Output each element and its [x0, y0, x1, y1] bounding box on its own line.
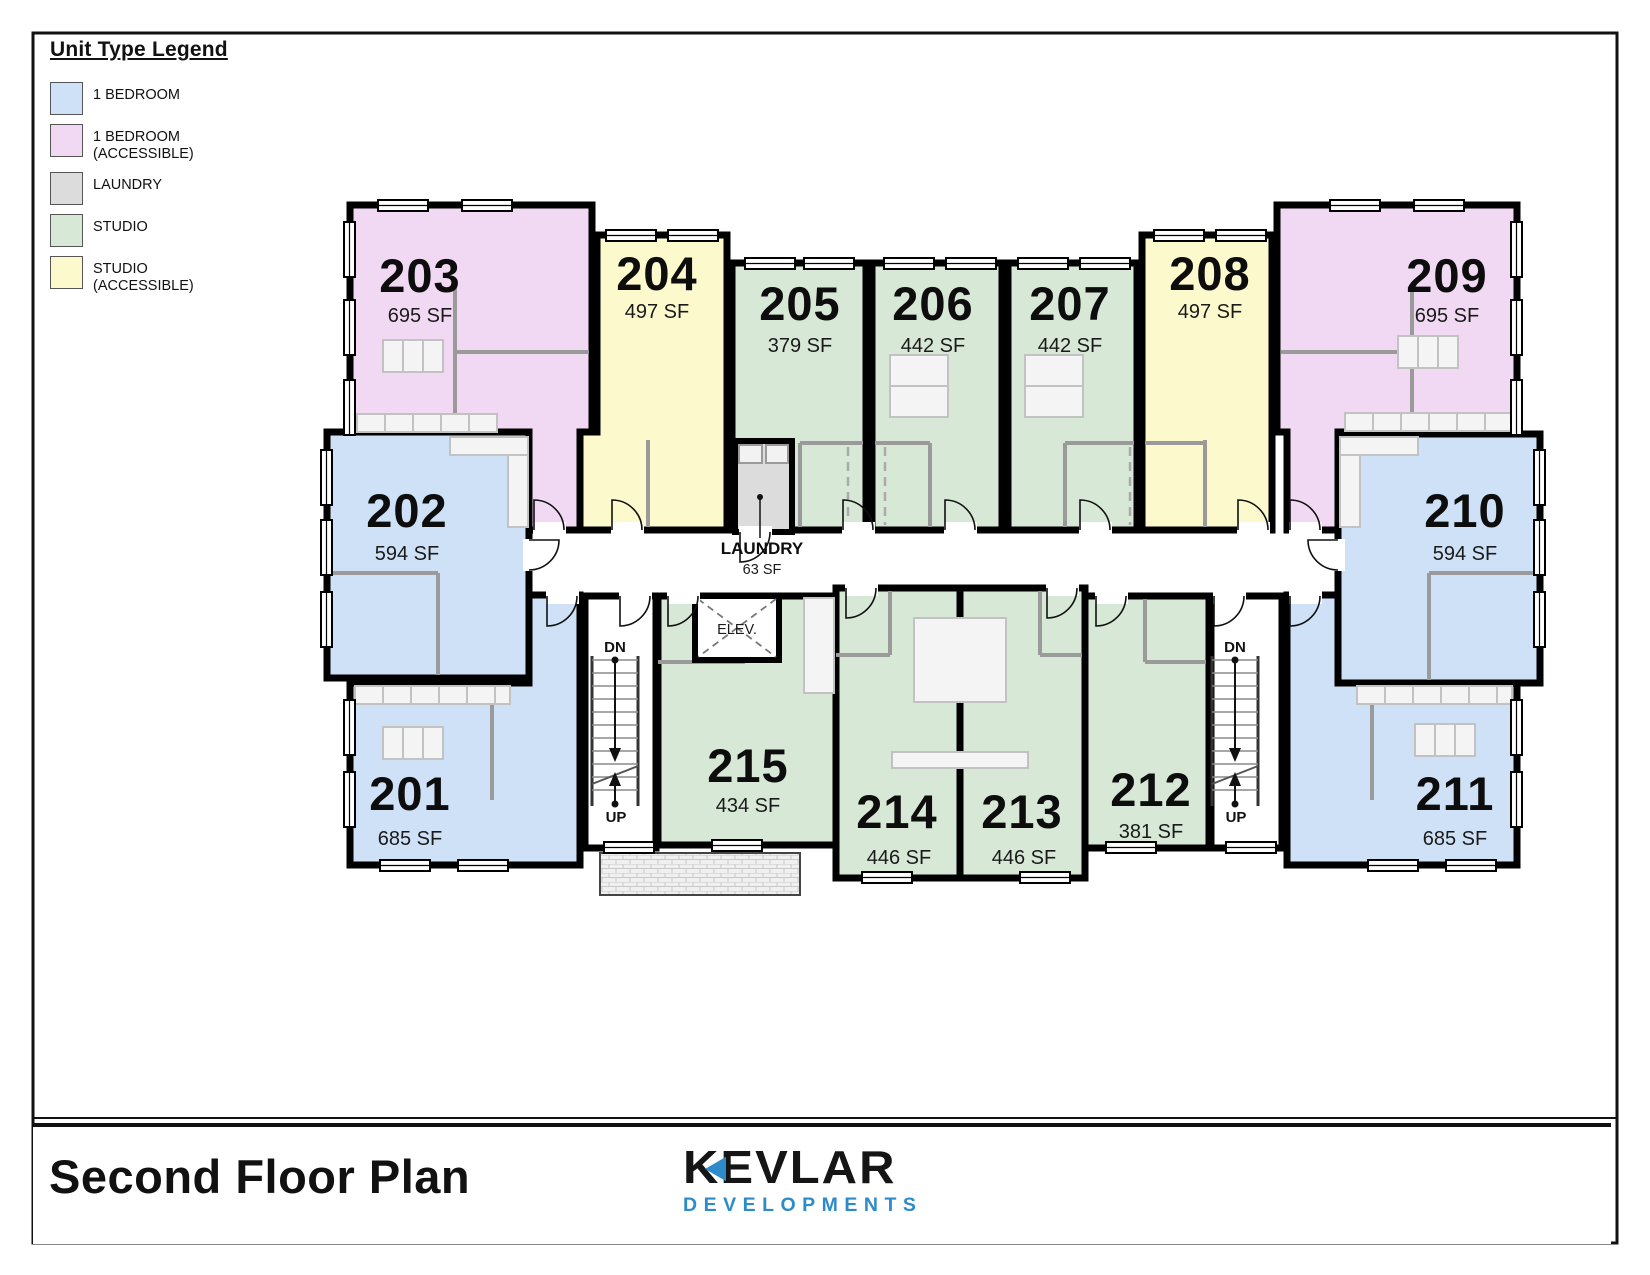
- unit-211-area: 685 SF: [1423, 828, 1487, 850]
- unit-215-number: 215: [707, 739, 788, 792]
- unit-205-area: 379 SF: [768, 335, 832, 357]
- logo-chevron-icon: [705, 1157, 726, 1181]
- unit-208-area: 497 SF: [1178, 301, 1242, 323]
- unit-212-area: 381 SF: [1119, 821, 1183, 843]
- laundry-label: LAUNDRY: [721, 539, 804, 558]
- unit-204-number: 204: [616, 247, 697, 300]
- right-stair-up-label: UP: [1226, 809, 1247, 826]
- unit-204-area: 497 SF: [625, 301, 689, 323]
- unit-210-area: 594 SF: [1433, 543, 1497, 565]
- unit-213-area: 446 SF: [992, 847, 1056, 869]
- legend-label: STUDIO (ACCESSIBLE): [93, 256, 194, 295]
- unit-207-area: 442 SF: [1038, 335, 1102, 357]
- unit-214-number: 214: [856, 785, 937, 838]
- kevlar-logo: KEVLAR DEVELOPMENTS: [683, 1143, 1003, 1217]
- unit-213-number: 213: [981, 785, 1062, 838]
- unit-210-number: 210: [1424, 484, 1505, 537]
- entry-canopy-hatch: [600, 853, 800, 895]
- unit-206-area: 442 SF: [901, 335, 965, 357]
- title-block-separator: [33, 1117, 1617, 1119]
- left-stair-up-label: UP: [606, 809, 627, 826]
- unit-209-number: 209: [1406, 249, 1487, 302]
- logo-subtitle: DEVELOPMENTS: [683, 1194, 1003, 1217]
- unit-206-number: 206: [892, 277, 973, 330]
- legend-label: 1 BEDROOM: [93, 82, 180, 104]
- legend-title: Unit Type Legend: [50, 38, 320, 62]
- unit-215-area: 434 SF: [716, 795, 780, 817]
- unit-212-number: 212: [1110, 763, 1191, 816]
- legend-label: LAUNDRY: [93, 172, 162, 194]
- elevator-label: ELEV.: [717, 622, 757, 638]
- floor-plan-page: 203 695 SF 204 497 SF 205 379 SF 206 442…: [0, 0, 1650, 1275]
- legend-item-laundry: LAUNDRY: [50, 172, 320, 205]
- right-stair-dn-label: DN: [1224, 639, 1246, 656]
- laundry-area: 63 SF: [743, 562, 782, 578]
- unit-209-area: 695 SF: [1415, 305, 1479, 327]
- legend-item-1-bedroom-accessible: 1 BEDROOM (ACCESSIBLE): [50, 124, 320, 163]
- legend-swatch-studio-accessible: [50, 256, 83, 289]
- legend-swatch-laundry: [50, 172, 83, 205]
- legend-swatch-studio: [50, 214, 83, 247]
- unit-201-area: 685 SF: [378, 828, 442, 850]
- title-block: Second Floor Plan KEVLAR DEVELOPMENTS: [33, 1123, 1611, 1244]
- unit-202-area: 594 SF: [375, 543, 439, 565]
- unit-type-legend: Unit Type Legend 1 BEDROOM 1 BEDROOM (AC…: [50, 38, 320, 304]
- unit-202-number: 202: [366, 484, 447, 537]
- legend-item-studio: STUDIO: [50, 214, 320, 247]
- legend-swatch-1-bedroom-accessible: [50, 124, 83, 157]
- legend-label: STUDIO: [93, 214, 148, 236]
- logo-wordmark: KEVLAR: [683, 1145, 1003, 1192]
- left-stair-dn-label: DN: [604, 639, 626, 656]
- unit-203-area: 695 SF: [388, 305, 452, 327]
- unit-208-number: 208: [1169, 247, 1250, 300]
- unit-201-number: 201: [369, 767, 450, 820]
- unit-207-number: 207: [1029, 277, 1110, 330]
- legend-item-1-bedroom: 1 BEDROOM: [50, 82, 320, 115]
- unit-203-number: 203: [379, 249, 460, 302]
- legend-swatch-1-bedroom: [50, 82, 83, 115]
- unit-214-area: 446 SF: [867, 847, 931, 869]
- legend-item-studio-accessible: STUDIO (ACCESSIBLE): [50, 256, 320, 295]
- right-stair-hall: [1211, 596, 1282, 848]
- page-title: Second Floor Plan: [49, 1149, 470, 1204]
- dryer-icon: [766, 445, 788, 463]
- unit-205-number: 205: [759, 277, 840, 330]
- unit-211-number: 211: [1416, 767, 1495, 820]
- washer-icon: [739, 445, 762, 463]
- legend-label: 1 BEDROOM (ACCESSIBLE): [93, 124, 194, 163]
